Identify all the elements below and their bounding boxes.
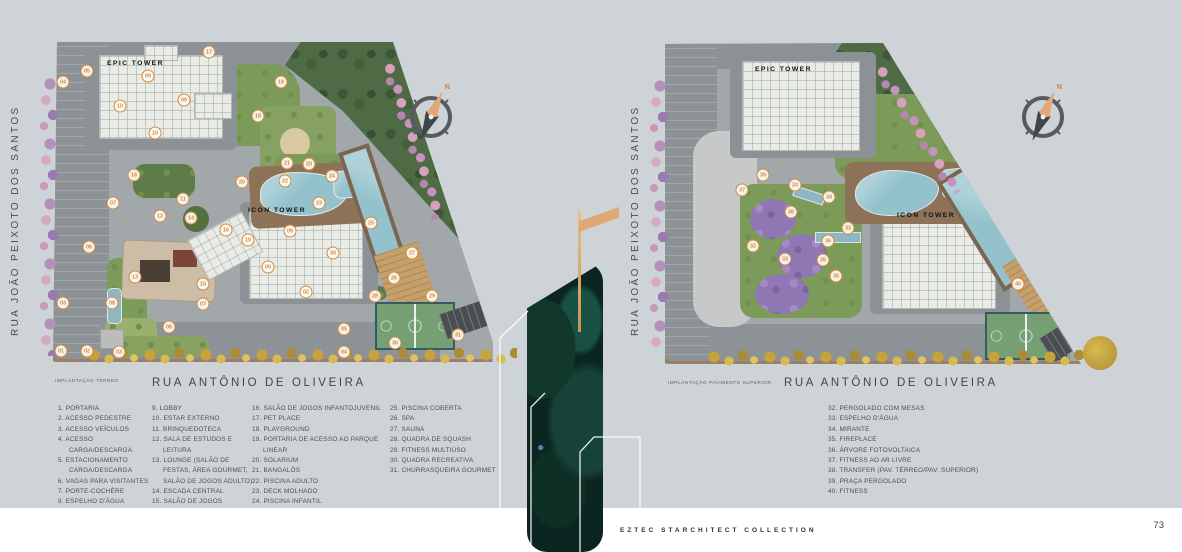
plan-marker: 09 xyxy=(142,70,155,83)
plan-marker: 39 xyxy=(757,169,770,182)
plan-marker: 12 xyxy=(154,210,167,223)
plan-marker: 19 xyxy=(275,76,288,89)
plan-marker: 07 xyxy=(107,197,120,210)
plan-marker: 24 xyxy=(326,170,339,183)
plan-marker: 31 xyxy=(452,329,465,342)
compass-icon xyxy=(400,84,462,146)
plan-marker: 06 xyxy=(163,321,176,334)
legend-item: 18. PLAYGROUND xyxy=(252,425,390,435)
plan-marker: 10 xyxy=(149,127,162,140)
plan-marker: 08 xyxy=(106,297,119,310)
legend-item: 25. PISCINA COBERTA xyxy=(390,404,505,414)
plan-marker: 33 xyxy=(779,253,792,266)
plan-marker: 05 xyxy=(262,261,275,274)
legend-item: 21. BANGALÔS xyxy=(252,466,390,476)
plan-marker: 02 xyxy=(300,286,313,299)
plan-marker: 26 xyxy=(388,272,401,285)
compass-north-label: N xyxy=(1057,82,1062,91)
plan-marker: 20 xyxy=(303,158,316,171)
plan-marker: 13 xyxy=(129,271,142,284)
legend-column-4: 25. PISCINA COBERTA26. SPA27. SAUNA28. Q… xyxy=(390,404,505,477)
street-label-bottom-right: RUA ANTÔNIO DE OLIVEIRA xyxy=(784,377,998,389)
legend-column-3: 16. SALÃO DE JOGOS INFANTOJUVENIL17. PET… xyxy=(252,404,390,508)
legend-item: 23. DECK MOLHADO xyxy=(252,487,390,497)
legend-item: 32. PERGOLADO COM MESAS xyxy=(828,404,993,414)
legend-item: 34. MIRANTE xyxy=(828,425,993,435)
plan-marker: 25 xyxy=(365,217,378,230)
legend-item: 9. LOBBY xyxy=(152,404,257,414)
plan-marker: 20 xyxy=(236,176,249,189)
legend-item: 39. PRAÇA PERGOLADO xyxy=(828,477,993,487)
plan-marker: 28 xyxy=(369,290,382,303)
legend-item: 37. FITNESS AO AR LIVRE xyxy=(828,456,993,466)
compass-rose-left: N xyxy=(400,84,462,146)
legend-item: 14. ESCADA CENTRAL xyxy=(152,487,257,497)
plan-marker: 09 xyxy=(178,94,191,107)
legend-item: 11. BRINQUEDOTECA xyxy=(152,425,257,435)
page-number: 73 xyxy=(1153,520,1164,531)
legend-item: 40. FITNESS xyxy=(828,487,993,497)
street-label-vertical-left: RUA JOÃO PEIXOTO DOS SANTOS xyxy=(10,92,21,336)
legend-item: 6. VAGAS PARA VISITANTES xyxy=(58,477,153,487)
plan-marker: 15 xyxy=(197,278,210,291)
plan-marker: 18 xyxy=(252,110,265,123)
plan-marker: 29 xyxy=(426,290,439,303)
plan-marker: 34 xyxy=(823,191,836,204)
plan-marker: 33 xyxy=(842,222,855,235)
legend-item: 7. PORTE-COCHÈRE xyxy=(58,487,153,497)
plan-marker: 09 xyxy=(284,225,297,238)
brochure-page: EPIC TOWER ICON TOWER 170504090910101918… xyxy=(0,0,1182,552)
legend-item: 12. SALA DE ESTUDOS E LEITURA xyxy=(152,435,257,456)
compass-rose-right: N xyxy=(1012,84,1074,146)
plan-marker: 40 xyxy=(1012,278,1025,291)
legend-item: 15. SALÃO DE JOGOS xyxy=(152,497,257,507)
plan-marker: 17 xyxy=(203,46,216,59)
plan-marker: 30 xyxy=(389,337,402,350)
street-label-bottom-left: RUA ANTÔNIO DE OLIVEIRA xyxy=(152,377,366,389)
plan-marker: 37 xyxy=(736,184,749,197)
plan-caption-superior: IMPLANTAÇÃO PAVIMENTO SUPERIOR xyxy=(668,380,771,385)
plan-marker: 36 xyxy=(830,270,843,283)
legend-item: 30. QUADRA RECREATIVA xyxy=(390,456,505,466)
legend-item: 13. LOUNGE (SALÃO DE FESTAS, ÁREA GOURME… xyxy=(152,456,257,487)
legend-item: 26. SPA xyxy=(390,414,505,424)
plan-marker: 05 xyxy=(338,323,351,336)
legend-item: 19. PORTARIA DE ACESSO AO PARQUE LINEAR xyxy=(252,435,390,456)
legend-item: 29. FITNESS MULTIÚSO xyxy=(390,446,505,456)
legend-item: 4. ACESSO CARGA/DESCARGA xyxy=(58,435,153,456)
plan-marker: 38 xyxy=(785,206,798,219)
compass-icon xyxy=(1012,84,1074,146)
plan-marker: 27 xyxy=(406,247,419,260)
legend-item: 8. ESPELHO D'ÁGUA xyxy=(58,497,153,507)
legend-item: 2. ACESSO PEDESTRE xyxy=(58,414,153,424)
plan-marker: 16 xyxy=(220,224,233,237)
plan-marker: 04 xyxy=(338,346,351,359)
plan-marker: 35 xyxy=(817,254,830,267)
plan-marker: 14 xyxy=(185,212,198,225)
legend-item: 38. TRANSFER (PAV. TÉRREO/PAV. SUPERIOR) xyxy=(828,466,993,476)
legend-item: 35. FIREPLACE xyxy=(828,435,993,445)
legend-item: 22. PISCINA ADULTO xyxy=(252,477,390,487)
legend-item: 36. ÁRVORE FOTOVOLTAICA xyxy=(828,446,993,456)
plan-marker: 36 xyxy=(822,235,835,248)
plan-marker: 07 xyxy=(197,298,210,311)
plan-marker: 05 xyxy=(81,65,94,78)
plan-marker: 04 xyxy=(57,76,70,89)
plan-marker: 03 xyxy=(113,346,126,359)
legend-item: 1. PORTARIA xyxy=(58,404,153,414)
legend-item: 3. ACESSO VEÍCULOS xyxy=(58,425,153,435)
legend-column-2: 9. LOBBY10. ESTAR EXTERNO11. BRINQUEDOTE… xyxy=(152,404,257,508)
plan-marker: 10 xyxy=(114,100,127,113)
plan-marker: 16 xyxy=(128,169,141,182)
legend-item: 28. QUADRA DE SQUASH xyxy=(390,435,505,445)
legend-item: 10. ESTAR EXTERNO xyxy=(152,414,257,424)
plan-marker: 22 xyxy=(279,175,292,188)
plan-marker: 30 xyxy=(327,247,340,260)
plan-marker: 11 xyxy=(177,193,190,206)
plan-marker: 10 xyxy=(242,234,255,247)
legend-item: 17. PET PLACE xyxy=(252,414,390,424)
legend-item: 16. SALÃO DE JOGOS INFANTOJUVENIL xyxy=(252,404,390,414)
plan-marker: 23 xyxy=(313,197,326,210)
legend-item: 20. SOLARIUM xyxy=(252,456,390,466)
legend-item: 24. PISCINA INFANTIL xyxy=(252,497,390,507)
legend-item: 27. SAUNA xyxy=(390,425,505,435)
legend-item: 5. ESTACIONAMENTO CARGA/DESCARGA xyxy=(58,456,153,477)
legend-item: 31. CHURRASQUEIRA GOURMET xyxy=(390,466,505,476)
plan-marker: 02 xyxy=(81,345,94,358)
plan-marker: 03 xyxy=(57,297,70,310)
legend-column-1: 1. PORTARIA2. ACESSO PEDESTRE3. ACESSO V… xyxy=(58,404,153,508)
plan-marker: 06 xyxy=(83,241,96,254)
plan-marker: 21 xyxy=(281,157,294,170)
plan-marker: 33 xyxy=(789,179,802,192)
legend-item: 33. ESPELHO D'ÁGUA xyxy=(828,414,993,424)
compass-north-label: N xyxy=(445,82,450,91)
plan-caption-terreo: IMPLANTAÇÃO TÉRREO xyxy=(55,378,119,383)
plan-marker: 01 xyxy=(55,345,68,358)
legend-column-5: 32. PERGOLADO COM MESAS33. ESPELHO D'ÁGU… xyxy=(828,404,993,497)
plan-marker: 32 xyxy=(747,240,760,253)
